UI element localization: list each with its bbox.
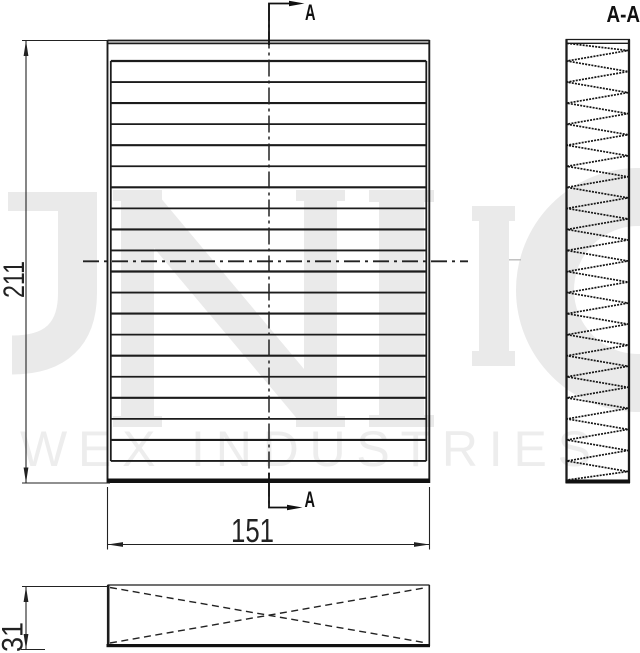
svg-text:211: 211	[0, 261, 31, 298]
svg-text:A: A	[305, 487, 316, 512]
svg-text:A-A: A-A	[607, 1, 640, 27]
svg-text:A: A	[305, 0, 316, 25]
svg-text:31: 31	[0, 622, 30, 652]
svg-text:151: 151	[231, 512, 274, 549]
